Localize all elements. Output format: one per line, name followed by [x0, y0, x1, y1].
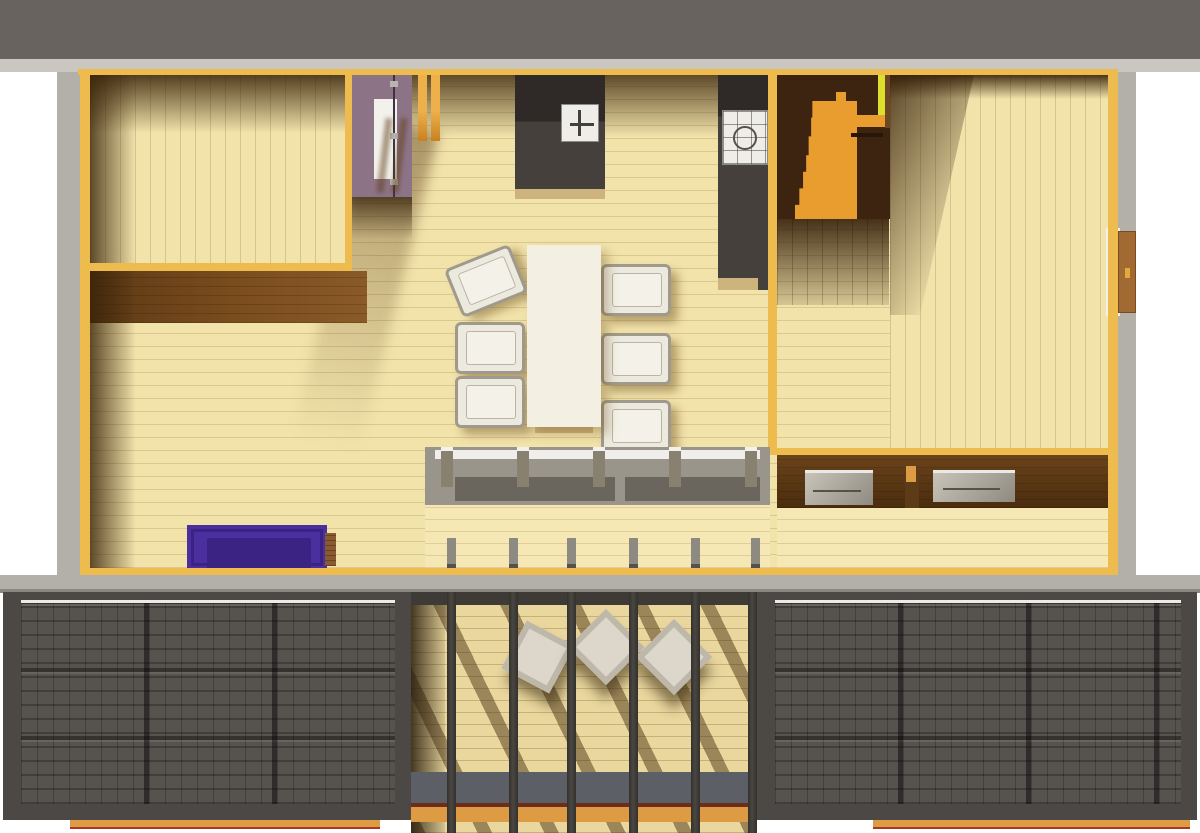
- floorplan-render: [0, 0, 1200, 833]
- kitchen-sink: [561, 104, 599, 142]
- sofa-cushion: [207, 538, 311, 570]
- hinge-icon: [390, 81, 398, 87]
- bedroom-floor: [90, 75, 346, 265]
- porch-rafter: [629, 592, 638, 833]
- perimeter-wall-right: [1108, 69, 1118, 575]
- small-orange-post: [906, 466, 916, 482]
- exterior-strip-left: [57, 72, 80, 575]
- stair-newel-post: [836, 92, 846, 116]
- glazing-post: [517, 447, 529, 487]
- kitchen-counter: [718, 73, 768, 290]
- living-shadow-left: [90, 271, 136, 570]
- covered-porch: [411, 592, 757, 833]
- burner-ring-icon: [733, 126, 757, 150]
- bedroom-wall-right: [345, 75, 352, 275]
- fascia-left: [70, 820, 380, 827]
- dining-chair: [601, 264, 671, 316]
- glazing-post: [669, 447, 681, 487]
- glazing-recess: [625, 477, 760, 501]
- sofa-wood-arm: [325, 533, 336, 566]
- chair-seat: [457, 255, 516, 305]
- glazing-recess: [455, 477, 615, 501]
- porch-rafter: [509, 592, 518, 833]
- nook-shadow: [352, 197, 412, 239]
- sideboard-right: [933, 470, 1015, 502]
- porch-threshold: [411, 807, 757, 822]
- partition-wall: [768, 73, 777, 455]
- right-room-floor: [890, 75, 1108, 450]
- sideboard-left: [805, 470, 873, 505]
- glazed-wall-header: [425, 447, 770, 505]
- faucet-icon: [570, 123, 594, 126]
- fascia-right-line: [873, 827, 1190, 829]
- kitchen-counter-base: [718, 278, 758, 290]
- roof-tile-grid: [21, 600, 395, 804]
- hinge-icon: [390, 133, 398, 139]
- chair-seat: [612, 342, 662, 376]
- vestibule-floor: [425, 505, 770, 568]
- right-lower-wall: [777, 448, 1108, 455]
- purple-sofa: [187, 525, 327, 570]
- perimeter-wall-left: [80, 69, 90, 575]
- dining-chair: [601, 400, 671, 452]
- tiled-roof-right: [757, 592, 1197, 820]
- roof-tile-grid: [775, 600, 1181, 804]
- dining-chair: [455, 322, 525, 374]
- door-handle-icon: [1125, 268, 1130, 278]
- faucet-icon: [578, 110, 581, 136]
- chair-seat: [612, 273, 662, 307]
- porch-header-beam: [411, 592, 757, 605]
- dining-chair: [601, 333, 671, 385]
- fascia-left-line: [70, 827, 380, 829]
- kitchen-island-base: [515, 189, 605, 199]
- stairwell: [777, 73, 890, 219]
- porch-rafter: [447, 592, 456, 833]
- perimeter-wall-top: [78, 69, 1118, 75]
- cooktop: [722, 110, 768, 165]
- stair-landing: [847, 115, 887, 127]
- understair-shadow: [777, 219, 889, 305]
- sideboard-handle: [943, 488, 1000, 490]
- dining-chair: [455, 376, 525, 428]
- chair-seat: [466, 331, 516, 365]
- chair-seat: [466, 385, 516, 419]
- roof-top-band: [0, 0, 1200, 59]
- glazing-post: [593, 447, 605, 487]
- stair-accent-strip: [878, 73, 885, 115]
- bedroom-shadow-left: [90, 75, 136, 265]
- chair-seat: [612, 409, 662, 443]
- entry-door-leaf: [1118, 231, 1136, 313]
- dining-table: [527, 245, 601, 427]
- porch-rafter: [567, 592, 576, 833]
- fascia-right: [873, 820, 1190, 827]
- tiled-roof-left: [3, 592, 411, 820]
- sideboard-handle: [813, 490, 861, 492]
- timber-post: [431, 75, 440, 141]
- perimeter-wall-bottom: [80, 568, 1118, 575]
- right-lower-floor: [777, 508, 1108, 568]
- timber-post: [418, 75, 427, 141]
- bedroom-wall-bottom: [90, 263, 352, 271]
- glazing-post: [745, 447, 757, 487]
- exterior-strip-right: [1118, 72, 1136, 575]
- porch-sill-band: [411, 772, 757, 805]
- porch-rafter: [691, 592, 700, 833]
- porch-rafter: [748, 592, 757, 833]
- stair-cast-shadow: [890, 75, 1010, 315]
- glazing-post: [441, 447, 453, 487]
